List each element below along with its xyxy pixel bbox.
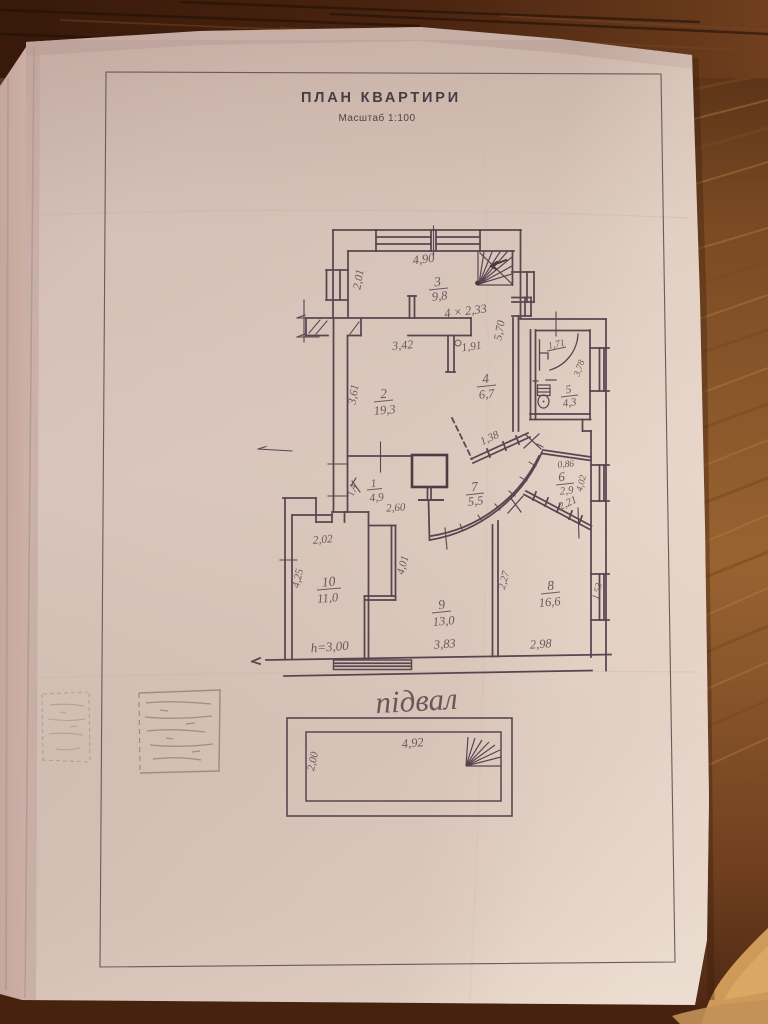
svg-text:11,0: 11,0 xyxy=(317,590,340,606)
svg-text:3,83: 3,83 xyxy=(432,636,456,652)
svg-text:3,42: 3,42 xyxy=(391,337,414,353)
svg-text:6,7: 6,7 xyxy=(478,386,496,402)
svg-text:10: 10 xyxy=(321,573,336,589)
svg-text:19,3: 19,3 xyxy=(373,402,396,418)
svg-text:підвал: підвал xyxy=(375,681,459,720)
svg-text:9,8: 9,8 xyxy=(431,288,449,304)
svg-text:2,98: 2,98 xyxy=(529,636,553,652)
svg-text:Масштаб 1:100: Масштаб 1:100 xyxy=(338,112,415,124)
svg-text:13,0: 13,0 xyxy=(432,613,456,629)
svg-text:4,9: 4,9 xyxy=(369,491,385,504)
svg-text:2,02: 2,02 xyxy=(312,533,333,547)
svg-text:ПЛАН КВАРТИРИ: ПЛАН КВАРТИРИ xyxy=(301,90,461,106)
svg-text:16,6: 16,6 xyxy=(538,594,562,610)
svg-text:2,60: 2,60 xyxy=(386,501,407,514)
svg-text:h=3,00: h=3,00 xyxy=(310,638,349,656)
svg-text:4,90: 4,90 xyxy=(412,251,436,268)
svg-text:4,3: 4,3 xyxy=(562,396,578,410)
svg-text:4,92: 4,92 xyxy=(401,735,424,751)
svg-text:5,5: 5,5 xyxy=(467,493,484,509)
